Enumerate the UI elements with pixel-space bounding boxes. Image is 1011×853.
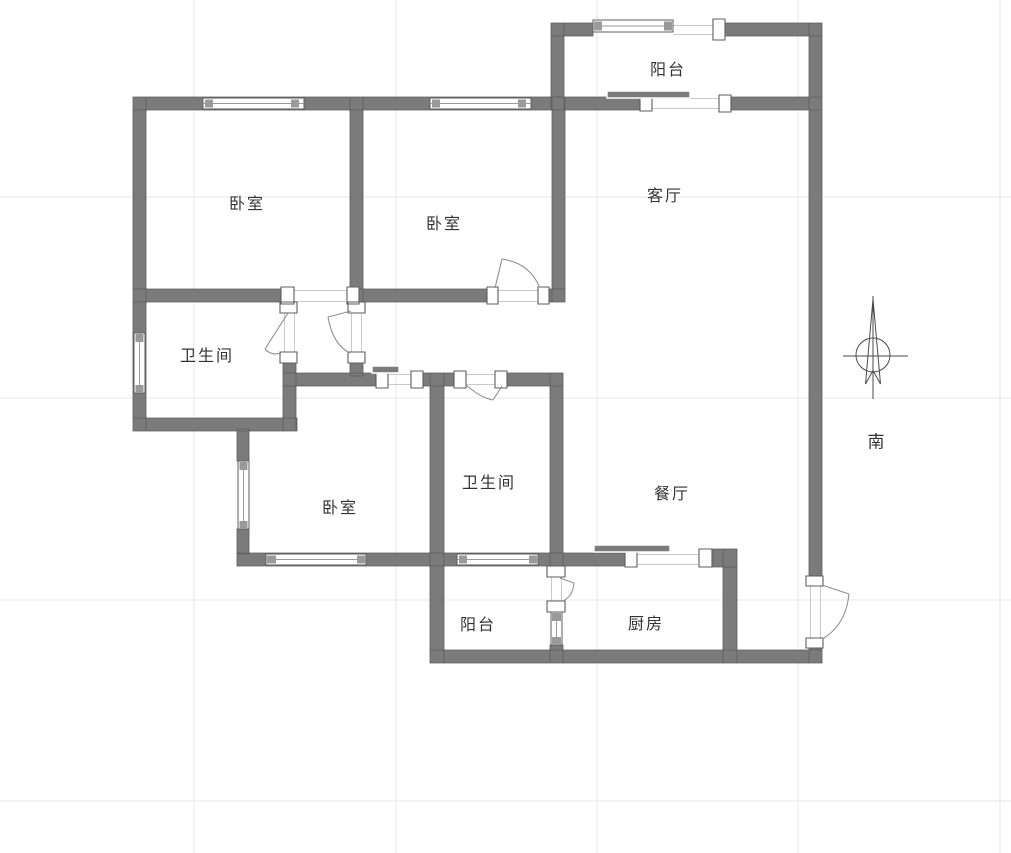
- compass-south-label: 南: [868, 428, 885, 453]
- sliding-door-panels: [372, 91, 690, 552]
- room-label-kitchen: 厨房: [628, 610, 664, 634]
- compass-axes: [843, 296, 908, 399]
- floorplan-drawing: [0, 0, 1011, 853]
- room-label-dining-room: 餐厅: [654, 480, 690, 504]
- compass-icon: [843, 296, 908, 399]
- room-label-balcony-bottom: 阳台: [460, 611, 496, 635]
- floorplan-canvas: 阳台 卧室 卧室 客厅 卫生间 卧室 卫生间 餐厅 阳台 厨房 南: [0, 0, 1011, 853]
- windows: [134, 20, 673, 645]
- room-label-bathroom-left: 卫生间: [180, 342, 234, 366]
- room-label-balcony-top: 阳台: [650, 56, 686, 80]
- room-label-bedroom-top-middle: 卧室: [426, 210, 462, 234]
- room-label-living-room: 客厅: [647, 182, 683, 206]
- window-mullions: [140, 26, 674, 645]
- room-label-bedroom-bottom: 卧室: [322, 494, 358, 518]
- room-label-bedroom-top-left: 卧室: [229, 190, 265, 214]
- window-end-caps: [136, 22, 673, 646]
- walls: [133, 23, 822, 663]
- room-label-bathroom-middle: 卫生间: [462, 469, 516, 493]
